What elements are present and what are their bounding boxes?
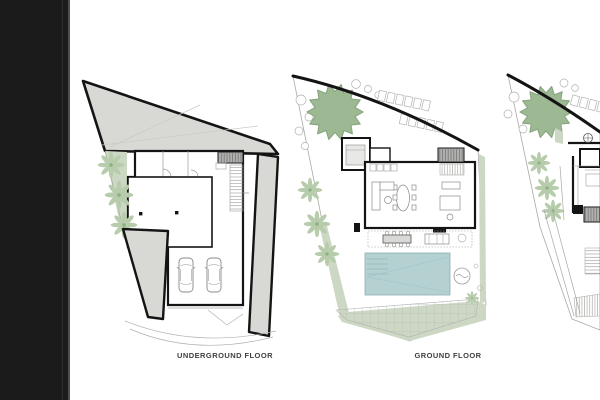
terrace-post bbox=[354, 223, 360, 232]
palm-tree-icon bbox=[105, 181, 133, 209]
car-icon bbox=[205, 258, 223, 292]
wall-core bbox=[573, 205, 583, 214]
entry-ramp bbox=[123, 229, 168, 319]
palm-tree-icon bbox=[98, 152, 124, 178]
cropped-floor-plan bbox=[500, 70, 600, 362]
palm-tree-icon bbox=[315, 242, 340, 267]
palm-tree-icon bbox=[535, 176, 560, 201]
palm-trees bbox=[98, 152, 137, 238]
car-icon bbox=[177, 258, 195, 292]
left-black-panel bbox=[0, 0, 70, 400]
underground-floor-caption: UNDERGROUND FLOOR bbox=[152, 351, 298, 360]
underground-floor-plan bbox=[80, 73, 280, 365]
column bbox=[139, 212, 142, 215]
palm-tree-icon bbox=[298, 178, 323, 203]
column bbox=[175, 211, 178, 214]
exterior-stairs bbox=[585, 248, 600, 274]
hatched-paving bbox=[574, 294, 600, 317]
ground-floor-caption: GROUND FLOOR bbox=[385, 351, 511, 360]
earth-mass bbox=[83, 81, 278, 154]
ground-floor-plan bbox=[290, 70, 500, 362]
panel-edge-line bbox=[62, 0, 63, 400]
terrace-post bbox=[433, 228, 446, 233]
potted-plant bbox=[458, 234, 466, 242]
bed bbox=[346, 145, 365, 165]
page-background: UNDERGROUND FLOOR GROUND FLOOR bbox=[0, 0, 600, 400]
palm-tree-icon bbox=[465, 291, 479, 305]
outdoor-table bbox=[383, 235, 411, 243]
right-retaining-wall bbox=[249, 154, 278, 336]
palm-tree-icon bbox=[304, 211, 330, 237]
planter-rows bbox=[570, 95, 600, 113]
dining-set bbox=[393, 185, 416, 211]
swimming-pool bbox=[365, 253, 450, 295]
palm-tree-icon bbox=[528, 152, 551, 175]
